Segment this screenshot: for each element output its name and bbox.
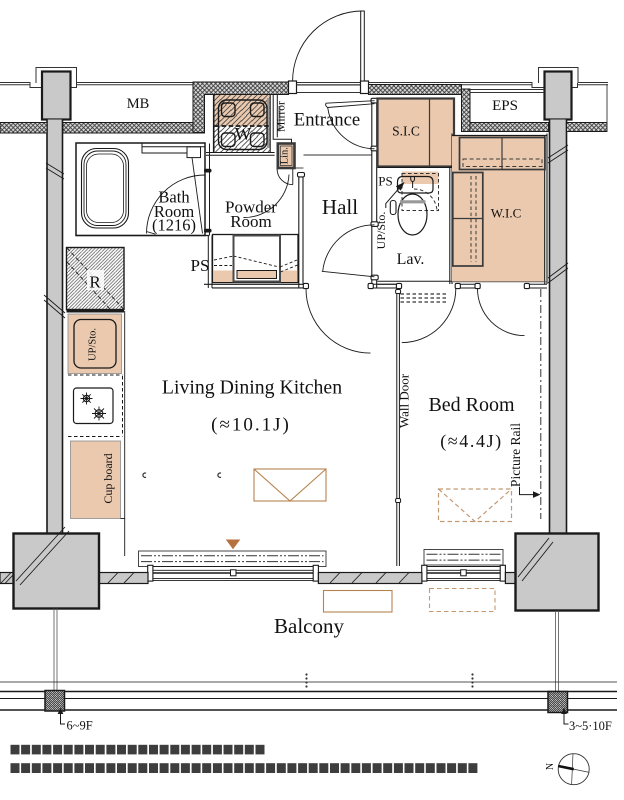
svg-text:6~9F: 6~9F (67, 719, 93, 733)
svg-text:N: N (545, 763, 556, 770)
svg-text:Entrance: Entrance (294, 110, 360, 131)
svg-text:Living Dining Kitchen: Living Dining Kitchen (162, 377, 342, 399)
svg-text:Room: Room (230, 212, 272, 231)
svg-text:UP/Sto.: UP/Sto. (374, 212, 388, 250)
svg-text:R: R (89, 273, 101, 292)
svg-text:W: W (235, 124, 252, 144)
svg-text:PS: PS (191, 256, 210, 275)
svg-text:Lav.: Lav. (397, 251, 425, 268)
svg-text:Lin.: Lin. (280, 147, 291, 164)
svg-text:UP/Sto.: UP/Sto. (88, 328, 99, 361)
svg-text:MB: MB (127, 96, 150, 112)
svg-text:Mirror: Mirror (275, 101, 287, 132)
svg-text:S.I.C: S.I.C (392, 124, 420, 139)
svg-text:(1216): (1216) (152, 216, 196, 235)
svg-text:EPS: EPS (492, 98, 518, 114)
svg-text:Wall Door: Wall Door (397, 373, 412, 428)
svg-text:PS: PS (378, 174, 392, 189)
svg-text:Hall: Hall (322, 195, 358, 219)
svg-text:Bed Room: Bed Room (428, 394, 515, 416)
svg-text:(≈10.1J): (≈10.1J) (211, 415, 291, 436)
svg-text:Picture Rail: Picture Rail (508, 423, 523, 487)
svg-text:Cup board: Cup board (101, 453, 115, 503)
svg-text:3~5·10F: 3~5·10F (569, 719, 612, 733)
svg-text:(≈4.4J): (≈4.4J) (440, 431, 503, 452)
svg-text:Balcony: Balcony (274, 614, 344, 638)
svg-text:W.I.C: W.I.C (491, 206, 522, 221)
